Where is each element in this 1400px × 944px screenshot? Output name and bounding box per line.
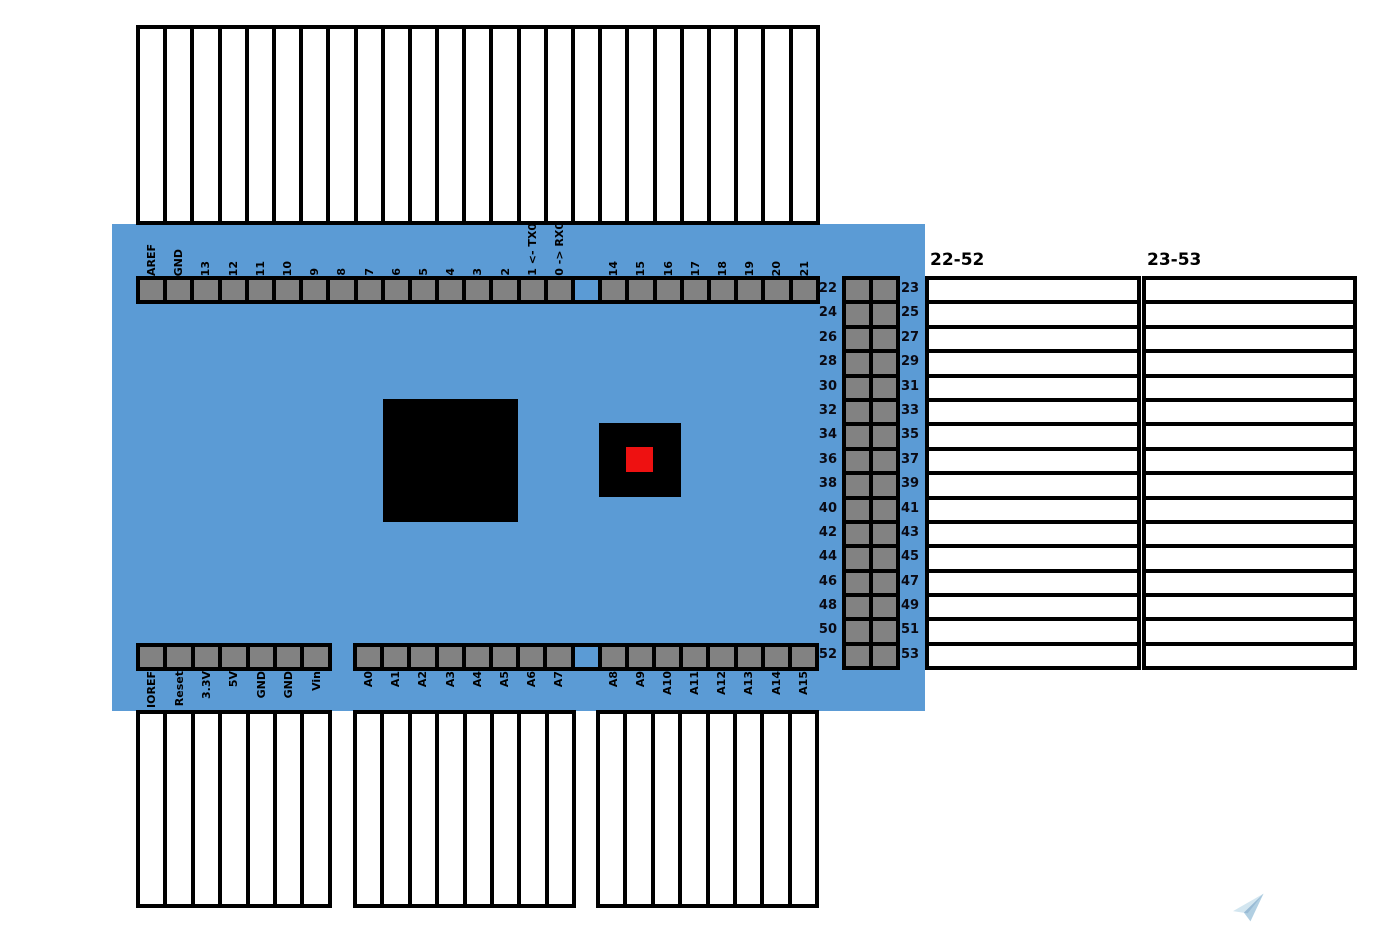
pin-cell bbox=[871, 498, 898, 522]
pin-label: A7 bbox=[553, 671, 564, 687]
pin-label: A10 bbox=[662, 671, 673, 695]
pin-cell bbox=[844, 595, 871, 619]
write-in-cell bbox=[709, 27, 736, 223]
table-row bbox=[1144, 278, 1355, 302]
write-in-cell bbox=[465, 712, 492, 906]
write-in-cell bbox=[383, 27, 410, 223]
pin-label: 11 bbox=[255, 261, 266, 276]
write-in-cell bbox=[600, 27, 627, 223]
pin-cell bbox=[871, 376, 898, 400]
table-row bbox=[1144, 449, 1355, 473]
pin-cell bbox=[871, 424, 898, 448]
pin-cell bbox=[844, 376, 871, 400]
pin-cell bbox=[871, 278, 898, 302]
write-in-cell bbox=[165, 712, 192, 906]
table-row bbox=[927, 327, 1139, 351]
pin-cell bbox=[844, 571, 871, 595]
pin-cell bbox=[275, 645, 302, 669]
pin-label: 3.3V bbox=[201, 671, 212, 699]
pin-cell bbox=[464, 645, 491, 669]
write-in-cell bbox=[791, 27, 818, 223]
pin-label: A1 bbox=[390, 671, 401, 687]
pin-number: 48 bbox=[804, 594, 840, 618]
write-in-cell bbox=[247, 27, 274, 223]
table-row bbox=[927, 595, 1139, 619]
write-in-cell bbox=[248, 712, 275, 906]
write-in-cell bbox=[736, 27, 763, 223]
pin-cell bbox=[545, 645, 572, 669]
paper-plane-icon bbox=[1233, 893, 1265, 922]
table-row bbox=[1144, 546, 1355, 570]
pin-cell bbox=[437, 645, 464, 669]
pin-label: A14 bbox=[771, 671, 782, 695]
pin-number: 34 bbox=[804, 423, 840, 447]
pin-label: A3 bbox=[445, 671, 456, 687]
write-in-cell bbox=[275, 712, 302, 906]
pin-label: A12 bbox=[716, 671, 727, 695]
power-write-in-columns bbox=[136, 710, 332, 908]
pin-cell bbox=[844, 498, 871, 522]
pin-label: 18 bbox=[717, 261, 728, 276]
microcontroller-chip bbox=[383, 399, 518, 522]
pin-label: 17 bbox=[690, 261, 701, 276]
pin-cell bbox=[518, 645, 545, 669]
pin-label: A11 bbox=[689, 671, 700, 695]
table-row bbox=[927, 619, 1139, 643]
power-pin-header bbox=[136, 643, 332, 671]
pin-cell bbox=[871, 571, 898, 595]
pin-cell bbox=[681, 645, 708, 669]
power-pin-labels: IOREF Reset 3.3V 5V GND GND Vin bbox=[138, 671, 330, 711]
pin-label: IOREF bbox=[146, 671, 157, 708]
write-in-cell bbox=[138, 712, 165, 906]
pin-cell bbox=[844, 400, 871, 424]
pin-cell bbox=[844, 522, 871, 546]
pin-cell bbox=[383, 278, 410, 302]
pin-label: 14 bbox=[608, 261, 619, 276]
analog-a0-a7-write-in-columns bbox=[353, 710, 576, 908]
pin-cell bbox=[763, 645, 790, 669]
analog-pin-labels: A0 A1 A2 A3 A4 A5 A6 A7 A8 A9 A10 A11 A1… bbox=[355, 671, 817, 711]
pin-cell bbox=[736, 645, 763, 669]
write-in-cell bbox=[546, 27, 573, 223]
pin-cell bbox=[519, 278, 546, 302]
pin-cell bbox=[871, 400, 898, 424]
pin-cell bbox=[844, 278, 871, 302]
pin-label: AREF bbox=[146, 244, 157, 276]
pin-cell bbox=[356, 278, 383, 302]
table-row bbox=[927, 424, 1139, 448]
pin-label: 9 bbox=[309, 268, 320, 276]
pin-cell bbox=[844, 619, 871, 643]
pin-cell bbox=[410, 278, 437, 302]
write-in-cell bbox=[519, 712, 546, 906]
pin-cell bbox=[844, 327, 871, 351]
pin-cell bbox=[193, 645, 220, 669]
pin-cell bbox=[192, 278, 219, 302]
pin-cell bbox=[165, 278, 192, 302]
pin-gap-cell bbox=[573, 278, 600, 302]
pin-cell bbox=[274, 278, 301, 302]
pin-label: 8 bbox=[336, 268, 347, 276]
pin-cell bbox=[627, 278, 654, 302]
pin-cell bbox=[844, 546, 871, 570]
write-in-cell bbox=[274, 27, 301, 223]
pin-number: 44 bbox=[804, 545, 840, 569]
pin-cell bbox=[355, 645, 382, 669]
pin-label: 20 bbox=[771, 261, 782, 276]
pin-cell bbox=[491, 645, 518, 669]
analog-a8-a15-write-in-columns bbox=[596, 710, 819, 908]
pin-label: 7 bbox=[364, 268, 375, 276]
table-row bbox=[927, 644, 1139, 668]
pin-number: 40 bbox=[804, 497, 840, 521]
pin-number: 46 bbox=[804, 570, 840, 594]
write-in-cell bbox=[598, 712, 625, 906]
write-in-cell bbox=[437, 27, 464, 223]
write-in-cell bbox=[193, 712, 220, 906]
pin-number: 30 bbox=[804, 375, 840, 399]
pin-cell bbox=[871, 522, 898, 546]
pin-cell bbox=[871, 449, 898, 473]
digital-pin-header-22-53 bbox=[842, 276, 900, 670]
pin-label: 10 bbox=[282, 261, 293, 276]
write-in-cell bbox=[627, 27, 654, 223]
write-in-cell bbox=[680, 712, 707, 906]
pin-cell bbox=[871, 619, 898, 643]
red-led bbox=[626, 447, 653, 472]
pin-label: 5 bbox=[418, 268, 429, 276]
top-write-in-columns bbox=[136, 25, 820, 225]
pin-cell bbox=[871, 473, 898, 497]
pin-label: GND bbox=[283, 671, 294, 698]
table-title-23-53: 23-53 bbox=[1147, 250, 1201, 270]
write-in-table-22-52 bbox=[925, 276, 1141, 670]
table-row bbox=[927, 571, 1139, 595]
pinout-worksheet: AREF GND 13 12 11 10 9 8 7 6 5 4 3 2 1 <… bbox=[0, 0, 1400, 944]
pin-label: A13 bbox=[743, 671, 754, 695]
digital-pin-header bbox=[136, 276, 820, 304]
pin-cell bbox=[844, 351, 871, 375]
table-row bbox=[927, 302, 1139, 326]
pin-cell bbox=[844, 424, 871, 448]
pin-label: Reset bbox=[174, 671, 185, 706]
pin-gap-cell bbox=[573, 645, 600, 669]
pin-number: 52 bbox=[804, 643, 840, 667]
table-title-22-52: 22-52 bbox=[930, 250, 984, 270]
table-row bbox=[927, 376, 1139, 400]
write-in-cell bbox=[491, 27, 518, 223]
write-in-table-23-53 bbox=[1142, 276, 1357, 670]
write-in-cell bbox=[492, 712, 519, 906]
pin-cell bbox=[844, 644, 871, 668]
pin-cell bbox=[871, 546, 898, 570]
write-in-cell bbox=[708, 712, 735, 906]
write-in-cell bbox=[301, 27, 328, 223]
write-in-cell bbox=[382, 712, 409, 906]
table-row bbox=[1144, 498, 1355, 522]
write-in-cell bbox=[437, 712, 464, 906]
pin-cell bbox=[844, 302, 871, 326]
pin-label: 1 <- TX0 bbox=[527, 223, 538, 276]
pin-label: 3 bbox=[472, 268, 483, 276]
pin-cell bbox=[220, 278, 247, 302]
pin-number: 42 bbox=[804, 521, 840, 545]
pin-cell bbox=[302, 645, 329, 669]
pin-number: 50 bbox=[804, 618, 840, 642]
write-in-cell bbox=[464, 27, 491, 223]
table-row bbox=[1144, 376, 1355, 400]
pin-cell bbox=[655, 278, 682, 302]
pin-cell bbox=[491, 278, 518, 302]
pin-cell bbox=[247, 278, 274, 302]
table-row bbox=[1144, 522, 1355, 546]
pin-label: 21 bbox=[799, 261, 810, 276]
pin-label: GND bbox=[256, 671, 267, 698]
table-row bbox=[1144, 400, 1355, 424]
pin-cell bbox=[709, 278, 736, 302]
small-ic-chip bbox=[599, 423, 681, 497]
write-in-cell bbox=[519, 27, 546, 223]
table-row bbox=[927, 498, 1139, 522]
pin-label: A4 bbox=[472, 671, 483, 687]
pin-cell bbox=[382, 645, 409, 669]
pin-cell bbox=[871, 302, 898, 326]
table-row bbox=[927, 546, 1139, 570]
write-in-cell bbox=[220, 712, 247, 906]
pin-cell bbox=[844, 449, 871, 473]
pin-label: 5V bbox=[228, 671, 239, 687]
write-in-cell bbox=[625, 712, 652, 906]
pin-number: 22 bbox=[804, 277, 840, 301]
write-in-cell bbox=[410, 27, 437, 223]
table-row bbox=[1144, 473, 1355, 497]
table-row bbox=[1144, 595, 1355, 619]
table-row bbox=[927, 449, 1139, 473]
pin-label: 13 bbox=[200, 261, 211, 276]
pin-number: 26 bbox=[804, 326, 840, 350]
table-row bbox=[1144, 424, 1355, 448]
write-in-cell bbox=[355, 712, 382, 906]
pin-cell bbox=[871, 327, 898, 351]
write-in-cell bbox=[165, 27, 192, 223]
pin-label: 15 bbox=[635, 261, 646, 276]
write-in-cell bbox=[762, 712, 789, 906]
write-in-cell bbox=[138, 27, 165, 223]
pin-label: Vin bbox=[311, 671, 322, 691]
write-in-cell bbox=[220, 27, 247, 223]
pin-cell bbox=[844, 473, 871, 497]
write-in-cell bbox=[356, 27, 383, 223]
write-in-cell bbox=[302, 712, 329, 906]
pin-cell bbox=[409, 645, 436, 669]
pin-label: 2 bbox=[500, 268, 511, 276]
pin-cell bbox=[600, 645, 627, 669]
pin-number: 24 bbox=[804, 301, 840, 325]
table-row bbox=[1144, 351, 1355, 375]
pin-cell bbox=[546, 278, 573, 302]
pin-cell bbox=[600, 278, 627, 302]
pin-cell bbox=[464, 278, 491, 302]
pin-cell bbox=[328, 278, 355, 302]
write-in-cell bbox=[735, 712, 762, 906]
pin-cell bbox=[871, 595, 898, 619]
pin-label: A6 bbox=[526, 671, 537, 687]
write-in-cell bbox=[763, 27, 790, 223]
write-in-cell bbox=[192, 27, 219, 223]
pin-cell bbox=[248, 645, 275, 669]
pin-cell bbox=[138, 278, 165, 302]
table-row bbox=[1144, 619, 1355, 643]
pin-cell bbox=[682, 278, 709, 302]
pin-label: GND bbox=[173, 249, 184, 276]
table-row bbox=[927, 278, 1139, 302]
table-row bbox=[1144, 302, 1355, 326]
pin-cell bbox=[138, 645, 165, 669]
write-in-cell bbox=[328, 27, 355, 223]
write-in-cell bbox=[410, 712, 437, 906]
even-pin-numbers: 22242628303234363840424446485052 bbox=[804, 277, 840, 667]
pin-number: 38 bbox=[804, 472, 840, 496]
pin-cell bbox=[301, 278, 328, 302]
table-row bbox=[1144, 571, 1355, 595]
pin-cell bbox=[871, 644, 898, 668]
pin-cell bbox=[763, 278, 790, 302]
analog-pin-header bbox=[353, 643, 819, 671]
pin-cell bbox=[736, 278, 763, 302]
pin-number: 36 bbox=[804, 448, 840, 472]
pin-label: 19 bbox=[744, 261, 755, 276]
pin-label: 12 bbox=[228, 261, 239, 276]
pin-cell bbox=[708, 645, 735, 669]
pin-label: A15 bbox=[798, 671, 809, 695]
pin-label: A5 bbox=[499, 671, 510, 687]
pin-label: A2 bbox=[417, 671, 428, 687]
table-row bbox=[927, 473, 1139, 497]
pin-cell bbox=[871, 351, 898, 375]
pin-cell bbox=[437, 278, 464, 302]
pin-cell bbox=[654, 645, 681, 669]
pin-label: A9 bbox=[635, 671, 646, 687]
pin-number: 28 bbox=[804, 350, 840, 374]
pin-label: 4 bbox=[445, 268, 456, 276]
pin-label: 0 -> RX0 bbox=[554, 222, 565, 276]
table-row bbox=[1144, 644, 1355, 668]
pin-label: 16 bbox=[663, 261, 674, 276]
table-row bbox=[927, 400, 1139, 424]
write-in-cell bbox=[653, 712, 680, 906]
write-in-cell bbox=[790, 712, 817, 906]
table-row bbox=[927, 351, 1139, 375]
write-in-cell bbox=[573, 27, 600, 223]
write-in-cell bbox=[547, 712, 574, 906]
pin-label: A8 bbox=[608, 671, 619, 687]
write-in-cell bbox=[655, 27, 682, 223]
pin-label: 6 bbox=[391, 268, 402, 276]
pin-cell bbox=[165, 645, 192, 669]
top-pin-labels: AREF GND 13 12 11 10 9 8 7 6 5 4 3 2 1 <… bbox=[138, 218, 818, 276]
table-row bbox=[1144, 327, 1355, 351]
pin-label: A0 bbox=[363, 671, 374, 687]
pin-number: 32 bbox=[804, 399, 840, 423]
write-in-cell bbox=[682, 27, 709, 223]
pin-cell bbox=[627, 645, 654, 669]
pin-cell bbox=[220, 645, 247, 669]
table-row bbox=[927, 522, 1139, 546]
